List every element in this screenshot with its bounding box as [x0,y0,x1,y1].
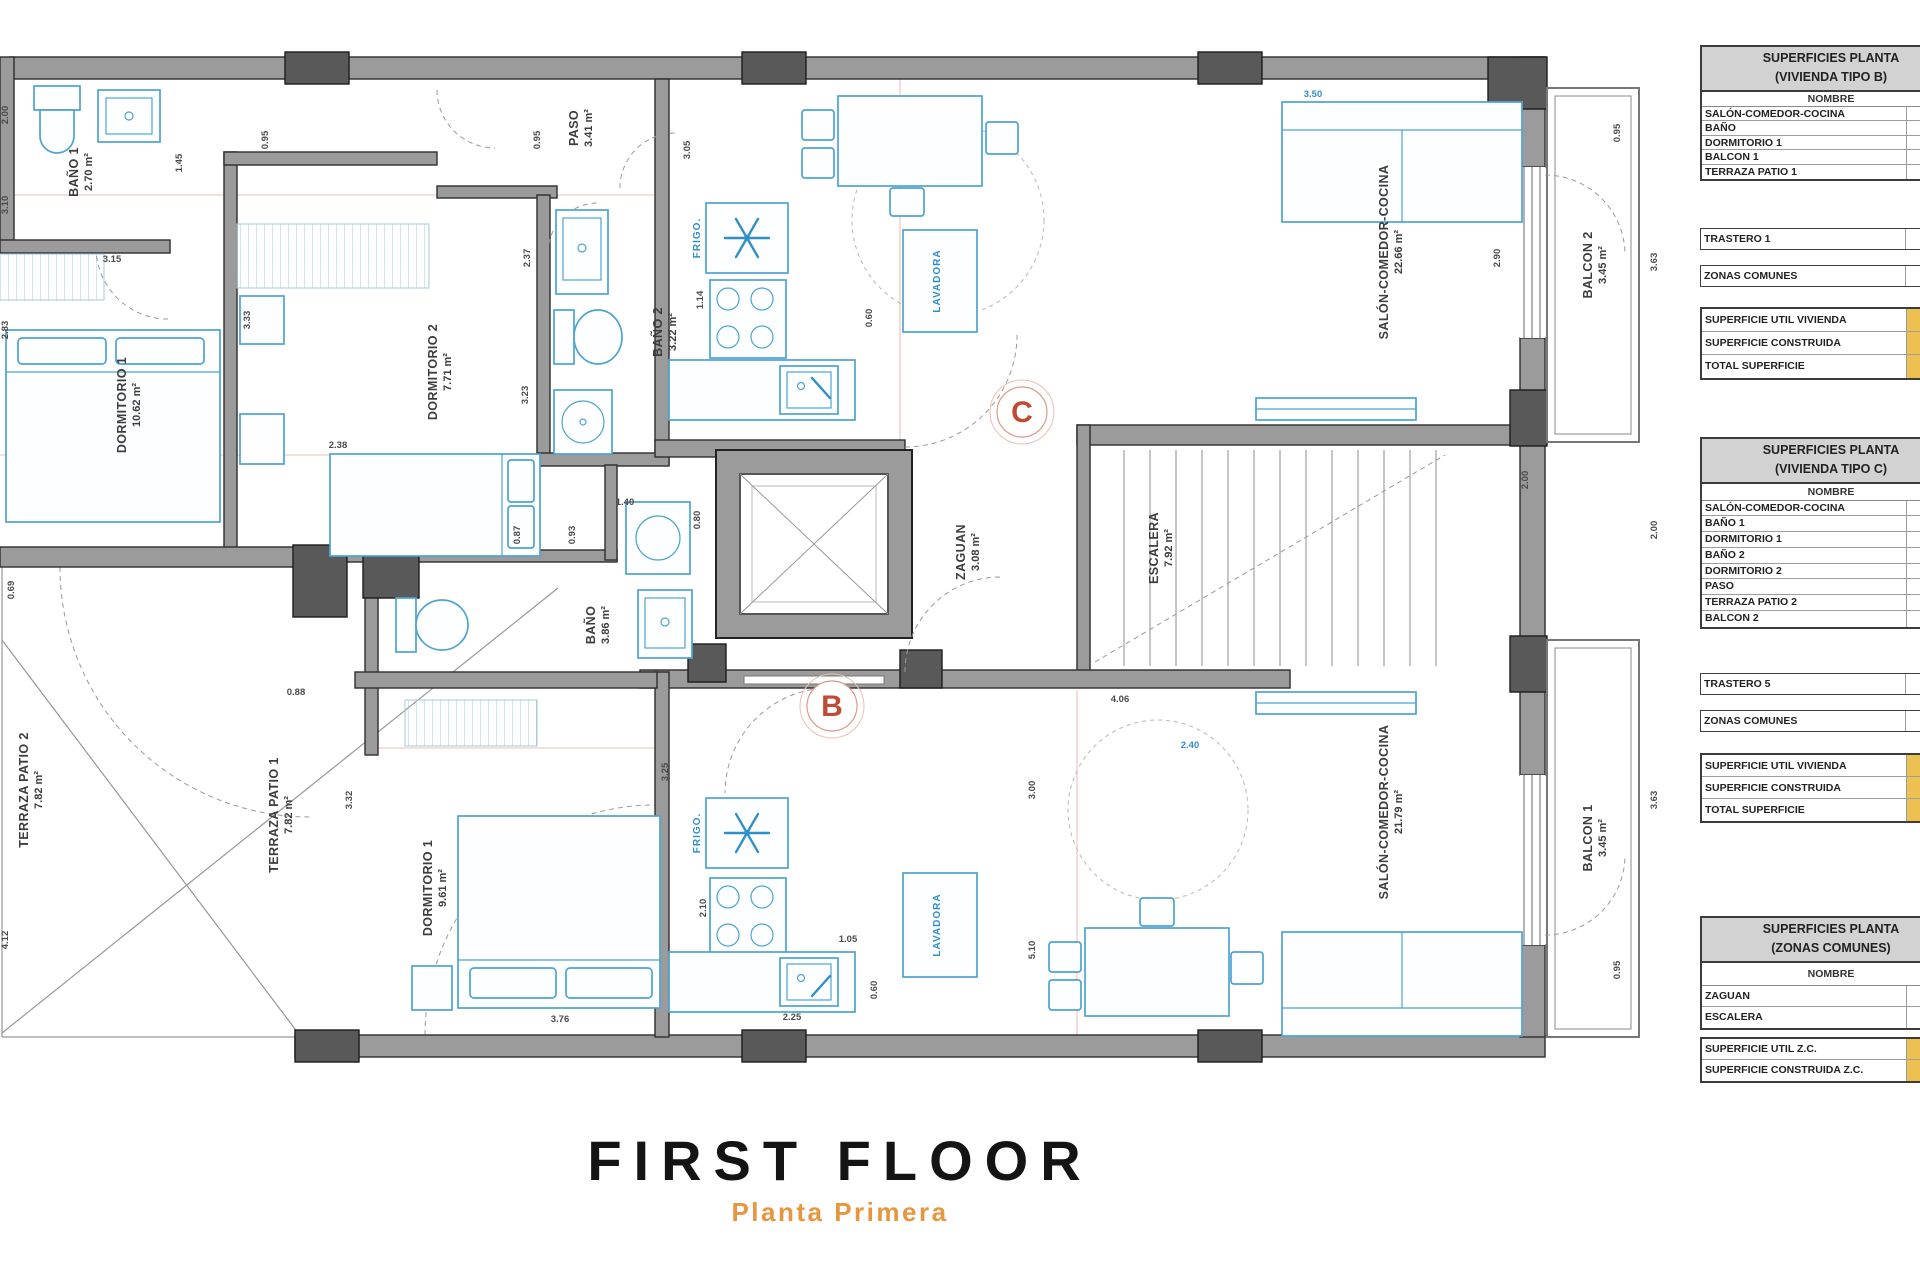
row-name-cell: TOTAL SUPERFICIE [1702,355,1906,378]
table-row: BALCON 1 [1702,150,1920,165]
dimension-label: 1.45 [174,153,185,172]
floorplan-drawing: BAÑO 12.70 m²DORMITORIO 110.62 m²DORMITO… [0,0,1700,1080]
row-name-cell: DORMITORIO 1 [1702,136,1906,150]
dimension-label: 0.95 [1612,123,1623,142]
row-name-cell: BAÑO 1 [1702,516,1906,531]
row-value-cell [1906,799,1920,821]
room-label: BAÑO 23.22 m² [650,307,679,357]
bedroom-1b-furniture [412,816,660,1010]
dimension-label: 2.10 [698,899,709,918]
dimension-label: 3.05 [682,140,693,159]
bedroom-1-furniture [6,330,220,522]
row-name-cell: DORMITORIO 1 [1702,532,1906,547]
table-row: SALÓN-COMEDOR-COCINA [1702,107,1920,122]
dimension-label: 3.25 [660,762,671,781]
dimension-label: 3.00 [1027,781,1038,800]
surface-table: SUPERFICIES PLANTA(VIVIENDA TIPO C)NOMBR… [1700,437,1920,629]
row-name-cell: SUPERFICIE UTIL VIVIENDA [1702,755,1906,776]
row-value-cell [1906,332,1920,354]
table-row: DORMITORIO 2 [1702,564,1920,580]
row-value-cell [1906,986,1920,1006]
dimension-label: 0.80 [692,511,703,530]
column-header: NOMBRE [1702,484,1920,501]
table-row: ZAGUAN [1702,986,1920,1007]
row-name-cell: DORMITORIO 2 [1702,564,1906,579]
appliance-label: FRIGO. [692,218,703,258]
dimension-label: 2.40 [1181,740,1200,751]
row-name-cell: TRASTERO 1 [1701,229,1905,249]
row-name-cell: SUPERFICIE CONSTRUIDA Z.C. [1702,1060,1906,1081]
dimension-label: 0.60 [864,309,875,328]
dimension-label: 1.05 [839,934,858,945]
dimension-label: 3.33 [242,311,253,330]
dimension-label: 2.38 [329,440,348,451]
row-name-cell: SUPERFICIE CONSTRUIDA [1702,332,1906,354]
unit-marker: C [990,380,1054,444]
table-title: SUPERFICIES PLANTA(ZONAS COMUNES) [1702,918,1920,963]
totals-row: SUPERFICIE UTIL Z.C. [1702,1039,1920,1060]
row-name-cell: SUPERFICIE UTIL Z.C. [1702,1039,1906,1059]
row-name-cell: ZONAS COMUNES [1701,266,1905,286]
table-title-line: SUPERFICIES PLANTA [1702,920,1920,939]
dimension-label: 0.60 [869,981,880,1000]
surface-tables-panel: SUPERFICIES PLANTA(VIVIENDA TIPO B)NOMBR… [1700,0,1920,1280]
table-row: BAÑO 1 [1702,516,1920,532]
rug-circle-bottom [1068,720,1248,900]
room-label: DORMITORIO 19.61 m² [421,840,449,936]
dimension-label: 0.87 [512,526,523,545]
table-row: PASO [1702,579,1920,595]
row-value-cell [1906,755,1920,776]
dimension-label: 3.32 [344,791,355,810]
dimension-label: 1.40 [616,497,635,508]
dimension-label: 3.10 [0,196,11,215]
table-title-line: SUPERFICIES PLANTA [1702,49,1920,68]
table-row: DORMITORIO 1 [1702,136,1920,151]
table-row: ESCALERA [1702,1007,1920,1028]
row-value-cell [1906,136,1920,150]
appliance-label: LAVADORA [932,249,943,312]
row-name-cell: BAÑO 2 [1702,548,1906,563]
totals-table: SUPERFICIE UTIL VIVIENDASUPERFICIE CONST… [1700,307,1920,380]
room-label: BALCON 13.45 m² [1581,804,1609,871]
standalone-box: ZONAS COMUNES [1700,265,1920,287]
kitch-bottom [669,798,977,1012]
room-label: SALÓN-COMEDOR-COCINA21.79 m² [1376,725,1405,900]
row-value-cell [1906,150,1920,164]
row-value-cell [1906,1007,1920,1028]
dimension-label: 4.12 [0,931,11,950]
row-value-cell [1906,777,1920,798]
totals-row: SUPERFICIE UTIL VIVIENDA [1702,755,1920,777]
table-title-line: (VIVIENDA TIPO B) [1702,68,1920,87]
room-label: ESCALERA7.92 m² [1147,512,1175,584]
row-value-cell [1905,674,1920,694]
dimension-label: 2.37 [522,249,533,268]
dimension-label: 3.63 [1649,791,1660,810]
appliance-label: FRIGO. [692,813,703,853]
table-row: BAÑO [1702,121,1920,136]
table-title: SUPERFICIES PLANTA(VIVIENDA TIPO B) [1702,47,1920,92]
title-block: FIRST FLOOR Planta Primera [440,1128,1240,1228]
dimension-label: 2.83 [0,321,11,340]
table-row: SALÓN-COMEDOR-COCINA [1702,501,1920,517]
row-value-cell [1905,711,1920,731]
row-name-cell: ESCALERA [1702,1007,1906,1028]
row-name-cell: SALÓN-COMEDOR-COCINA [1702,501,1906,516]
surface-table: SUPERFICIES PLANTA(ZONAS COMUNES)NOMBREZ… [1700,916,1920,1030]
dimension-label: 3.23 [520,386,531,405]
dimension-label: 2.00 [1649,521,1660,540]
row-value-cell [1906,501,1920,516]
bathroom-2-fixtures [554,210,622,454]
totals-row: SUPERFICIE CONSTRUIDA [1702,777,1920,799]
standalone-box: ZONAS COMUNES [1700,710,1920,732]
row-value-cell [1906,548,1920,563]
row-value-cell [1906,532,1920,547]
standalone-box-row: TRASTERO 5 [1701,674,1920,694]
room-label: PASO3.41 m² [567,109,595,147]
row-value-cell [1906,595,1920,610]
dimension-label: 2.00 [1520,471,1531,490]
standalone-box-row: ZONAS COMUNES [1701,711,1920,731]
column-header: NOMBRE [1702,92,1920,107]
row-name-cell: BALCON 1 [1702,150,1906,164]
row-name-cell: SUPERFICIE CONSTRUIDA [1702,777,1906,798]
table-title-line: (VIVIENDA TIPO C) [1702,460,1920,479]
row-name-cell: TERRAZA PATIO 1 [1702,165,1906,180]
row-name-cell: SALÓN-COMEDOR-COCINA [1702,107,1906,121]
dimension-label: 0.95 [260,130,271,149]
table-title-line: (ZONAS COMUNES) [1702,939,1920,958]
row-name-cell: SUPERFICIE UTIL VIVIENDA [1702,309,1906,331]
bedroom-2-furniture [240,296,540,556]
row-name-cell: TRASTERO 5 [1701,674,1905,694]
column-header: NOMBRE [1702,963,1920,986]
table-row: BAÑO 2 [1702,548,1920,564]
totals-row: SUPERFICIE UTIL VIVIENDA [1702,309,1920,332]
dimension-label: 0.69 [6,581,17,600]
dimension-label: 0.88 [287,687,306,698]
balconies [1547,88,1639,1037]
row-name-cell: BALCON 2 [1702,611,1906,627]
dimension-label: 2.90 [1492,249,1503,268]
row-value-cell [1905,266,1920,286]
row-name-cell: ZAGUAN [1702,986,1906,1006]
dimension-label: 3.15 [103,254,122,265]
dimension-label: 3.63 [1649,253,1660,272]
row-value-cell [1906,1039,1920,1059]
row-value-cell [1906,165,1920,180]
room-label: TERRAZA PATIO 27.82 m² [17,732,45,848]
unit-marker-letter: C [1011,396,1033,429]
row-value-cell [1906,564,1920,579]
dimension-label: 3.76 [551,1014,570,1025]
row-name-cell: BAÑO [1702,121,1906,135]
dimension-label: 1.14 [695,290,706,309]
row-value-cell [1906,611,1920,627]
dimension-label: 2.25 [783,1012,802,1023]
kitch-top [669,203,977,420]
row-value-cell [1906,355,1920,378]
dimension-label: 0.95 [1612,960,1623,979]
table-title: SUPERFICIES PLANTA(VIVIENDA TIPO C) [1702,439,1920,484]
row-value-cell [1906,579,1920,594]
room-label: BAÑO3.86 m² [583,606,612,644]
standalone-box: TRASTERO 1 [1700,228,1920,250]
dimension-label: 4.06 [1111,694,1130,705]
unit-marker-letter: B [821,690,843,723]
dimension-label: 2.00 [0,106,11,125]
standalone-box-row: TRASTERO 1 [1701,229,1920,249]
table-row: TERRAZA PATIO 1 [1702,165,1920,180]
dimension-label: 5.10 [1027,941,1038,960]
living-bottom [1049,692,1522,1036]
appliance-label: LAVADORA [932,893,943,956]
row-name-cell: TOTAL SUPERFICIE [1702,799,1906,821]
row-value-cell [1906,1060,1920,1081]
row-name-cell: ZONAS COMUNES [1701,711,1905,731]
row-name-cell: PASO [1702,579,1906,594]
row-value-cell [1905,229,1920,249]
room-label: BALCON 23.45 m² [1581,231,1609,298]
totals-row: SUPERFICIE CONSTRUIDA Z.C. [1702,1060,1920,1081]
row-value-cell [1906,121,1920,135]
dimension-label: 3.50 [1304,89,1323,100]
row-value-cell [1906,309,1920,331]
room-label: ZAGUAN3.08 m² [954,524,982,580]
totals-row: TOTAL SUPERFICIE [1702,355,1920,378]
page-title: FIRST FLOOR [440,1128,1240,1193]
table-row: TERRAZA PATIO 2 [1702,595,1920,611]
dimension-label: 0.95 [532,130,543,149]
standalone-box: TRASTERO 5 [1700,673,1920,695]
totals-row: TOTAL SUPERFICIE [1702,799,1920,821]
page-subtitle: Planta Primera [440,1197,1240,1228]
surface-table: SUPERFICIES PLANTA(VIVIENDA TIPO B)NOMBR… [1700,45,1920,181]
totals-table: SUPERFICIE UTIL VIVIENDASUPERFICIE CONST… [1700,753,1920,823]
row-name-cell: TERRAZA PATIO 2 [1702,595,1906,610]
totals-table: SUPERFICIE UTIL Z.C.SUPERFICIE CONSTRUID… [1700,1037,1920,1083]
row-value-cell [1906,107,1920,121]
unit-marker: B [800,674,864,738]
row-value-cell [1906,516,1920,531]
room-label: DORMITORIO 27.71 m² [426,324,454,420]
standalone-box-row: ZONAS COMUNES [1701,266,1920,286]
table-title-line: SUPERFICIES PLANTA [1702,441,1920,460]
table-row: DORMITORIO 1 [1702,532,1920,548]
elevator-shaft [716,450,912,684]
dimension-label: 0.93 [567,526,578,545]
bathroom-1-fixtures [34,86,160,153]
room-label: BAÑO 12.70 m² [66,147,95,197]
totals-row: SUPERFICIE CONSTRUIDA [1702,332,1920,355]
table-row: BALCON 2 [1702,611,1920,627]
